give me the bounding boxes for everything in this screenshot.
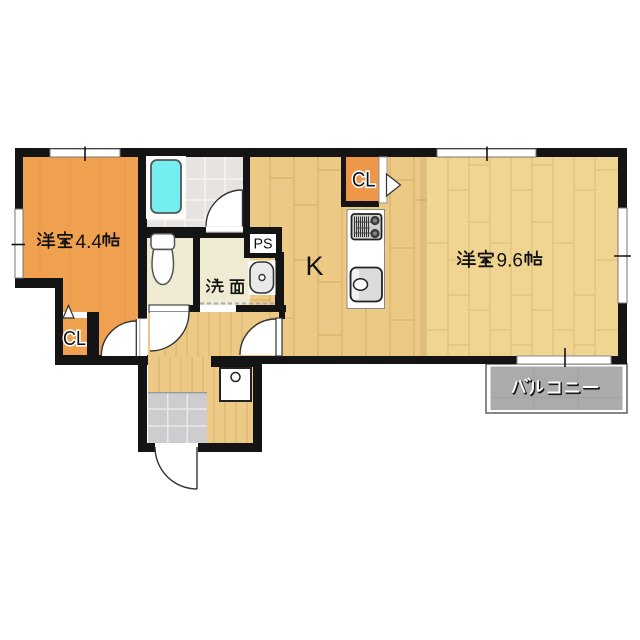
svg-text:4.4: 4.4 <box>76 232 103 253</box>
svg-text:CL: CL <box>63 328 86 350</box>
svg-text:CL: CL <box>352 169 376 192</box>
svg-text:9.6: 9.6 <box>497 251 523 272</box>
svg-text:PS: PS <box>254 237 273 253</box>
svg-text:K: K <box>306 251 324 281</box>
